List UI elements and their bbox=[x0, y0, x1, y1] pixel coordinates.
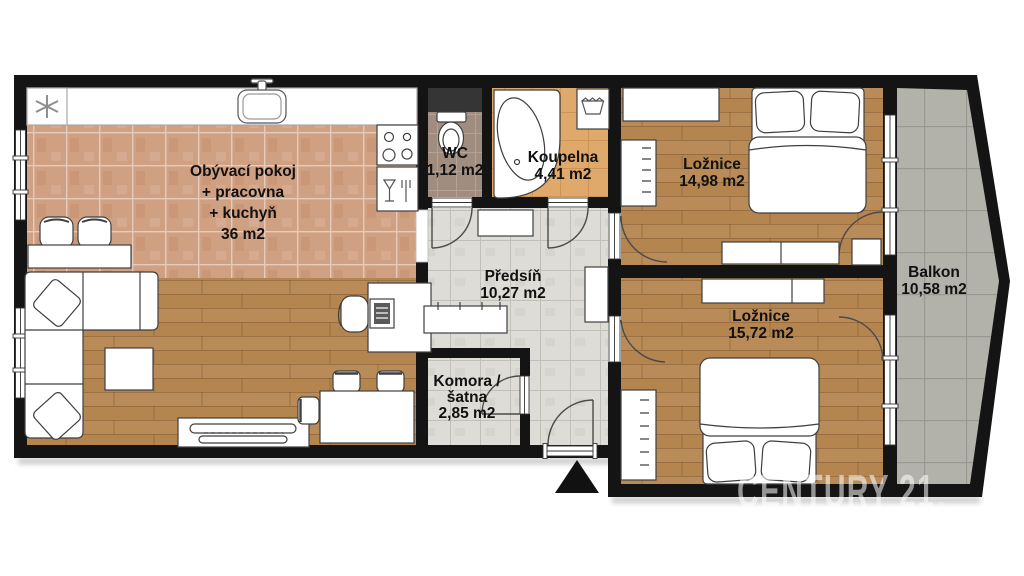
tv-stand-icon bbox=[178, 418, 309, 447]
watermark-registered-icon: ® bbox=[938, 501, 947, 512]
coffee-table-icon bbox=[105, 348, 153, 390]
hallway-area: 10,27 m2 bbox=[480, 285, 546, 302]
window-door-bedroom2-balcony bbox=[882, 315, 898, 445]
door-frame-bedroom2 bbox=[609, 316, 620, 362]
hall-sideboard bbox=[424, 302, 507, 333]
hallway-label: Předsíň bbox=[485, 268, 542, 285]
wc-shaft bbox=[423, 88, 482, 112]
door-frame-bathroom bbox=[548, 198, 588, 207]
dining-table-icon bbox=[320, 391, 414, 443]
bathroom-label: Koupelna bbox=[528, 149, 599, 166]
dishwasher-icon bbox=[377, 167, 418, 211]
door-frame-pantry bbox=[520, 376, 529, 414]
wc-label: WC bbox=[442, 145, 468, 162]
balcony-area: 10,58 m2 bbox=[901, 281, 967, 298]
desk bbox=[28, 245, 131, 268]
door-frame-wc bbox=[432, 198, 472, 207]
bathroom-area: 4,41 m2 bbox=[535, 166, 592, 183]
passage-living-hallway bbox=[416, 210, 428, 262]
bed-icon bbox=[749, 88, 866, 213]
window-door-bedroom1-balcony bbox=[882, 115, 898, 255]
monitor-icon bbox=[370, 299, 394, 328]
nightstand-icon bbox=[852, 239, 881, 265]
bedroom1-label: Ložnice bbox=[683, 156, 741, 173]
office-chair-icon bbox=[339, 296, 369, 332]
living-room-label: Obývací pokoj bbox=[190, 163, 296, 180]
pantry-area: 2,85 m2 bbox=[439, 405, 496, 422]
washing-machine-icon bbox=[577, 89, 609, 129]
hall-cabinet bbox=[585, 267, 608, 322]
living-room-area: 36 m2 bbox=[221, 226, 265, 243]
wardrobe-icon bbox=[621, 390, 656, 480]
living-room-label-line2: + pracovna bbox=[202, 184, 285, 201]
dining-chair-icon bbox=[333, 371, 360, 392]
dresser-icon bbox=[722, 242, 839, 264]
window-living-1 bbox=[13, 130, 28, 220]
door-frame-bedroom1 bbox=[609, 213, 620, 259]
bedroom2-label: Ložnice bbox=[732, 308, 790, 325]
pantry-label: Komora / bbox=[433, 373, 501, 390]
hall-cabinet bbox=[478, 210, 533, 236]
watermark: CENTURY 21 ® bbox=[737, 465, 947, 517]
wardrobe-icon bbox=[621, 140, 656, 206]
watermark-brand: CENTURY 21 bbox=[737, 465, 935, 517]
pantry-label-line2: šatna bbox=[447, 389, 488, 406]
dining-chair-icon bbox=[298, 397, 319, 424]
chair-icon bbox=[40, 217, 73, 248]
chair-icon bbox=[78, 217, 111, 248]
bedroom1-area: 14,98 m2 bbox=[679, 173, 745, 190]
kitchen-counter bbox=[27, 88, 417, 125]
bedroom2-area: 15,72 m2 bbox=[728, 325, 794, 342]
balcony-label: Balkon bbox=[908, 264, 960, 281]
wc-area: 1,12 m2 bbox=[427, 162, 484, 179]
vent-icon bbox=[27, 88, 67, 125]
wardrobe-icon bbox=[623, 88, 719, 121]
stove-icon bbox=[377, 125, 418, 165]
door-frame-entrance bbox=[543, 444, 597, 459]
dresser-icon bbox=[702, 279, 824, 303]
entrance-arrow-icon bbox=[555, 460, 599, 493]
dining-chair-icon bbox=[377, 371, 404, 392]
floor-plan-page: Obývací pokoj + pracovna + kuchyň 36 m2 … bbox=[0, 0, 1024, 576]
floor-plan: Obývací pokoj + pracovna + kuchyň 36 m2 … bbox=[0, 0, 1024, 576]
living-room-label-line3: + kuchyň bbox=[209, 205, 277, 222]
